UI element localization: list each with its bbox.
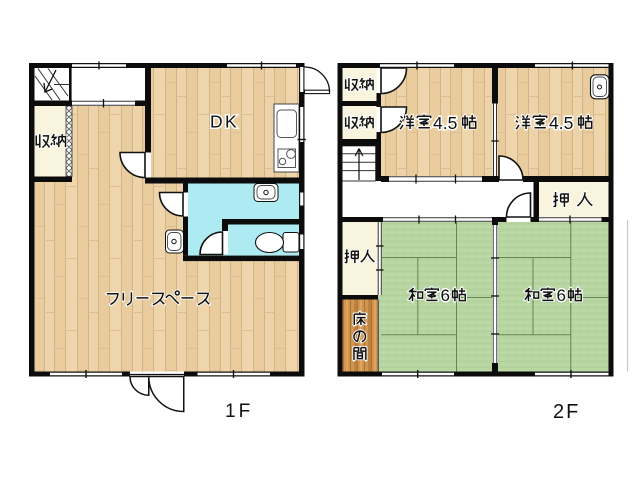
svg-text:D: D	[210, 112, 223, 132]
svg-text:6: 6	[441, 286, 450, 305]
svg-text:4.5: 4.5	[433, 113, 457, 133]
svg-text:4.5: 4.5	[549, 113, 573, 133]
svg-text:6: 6	[557, 286, 566, 305]
svg-text:2F: 2F	[553, 401, 580, 423]
svg-text:1F: 1F	[225, 401, 253, 422]
svg-text:K: K	[225, 112, 237, 132]
